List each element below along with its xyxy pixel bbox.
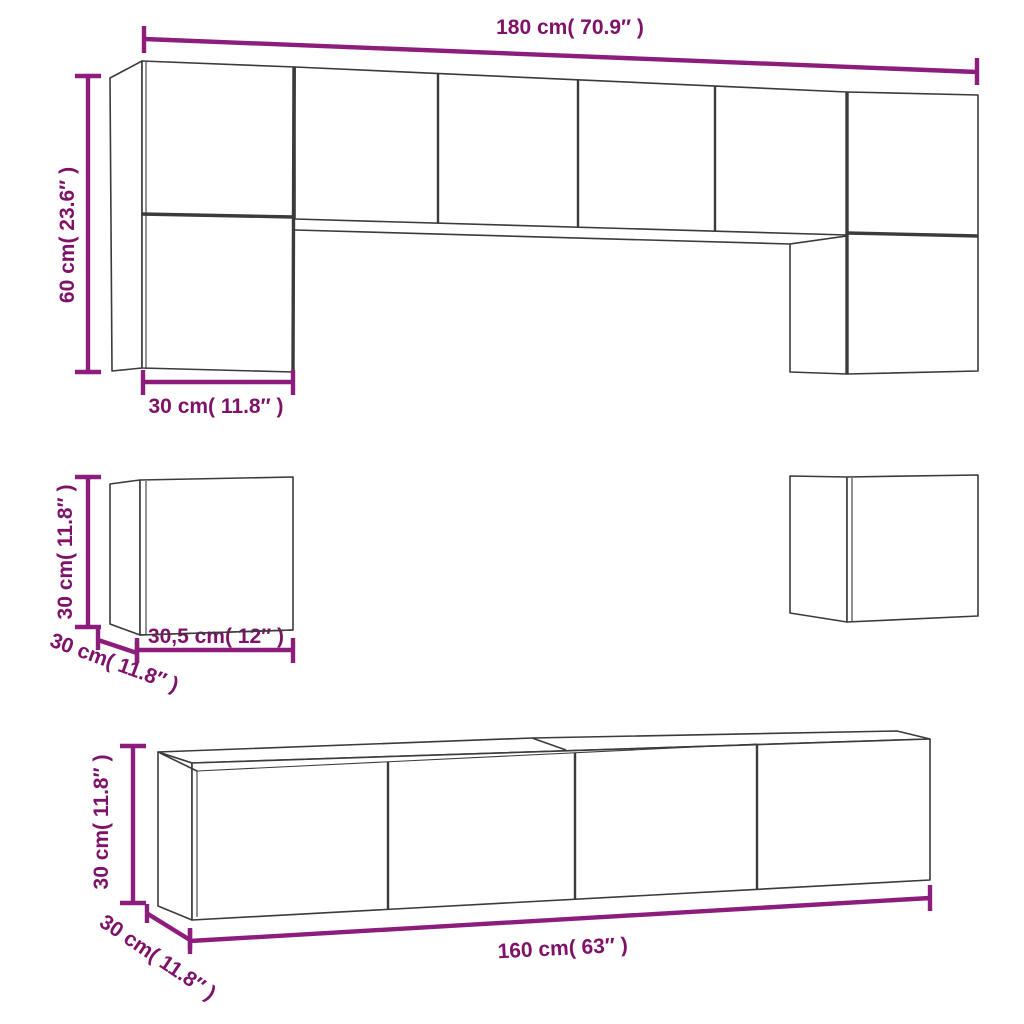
product-dimension-image: 180 cm( 70.9″ ) 60 cm( 23.6″ ) 30 cm( 11… xyxy=(0,0,1024,1024)
diagram-canvas: 180 cm( 70.9″ ) 60 cm( 23.6″ ) 30 cm( 11… xyxy=(0,0,1024,1024)
small-left-side-face xyxy=(110,480,140,635)
tv-stand-side-face xyxy=(158,752,192,920)
dim-top-height-label: 60 cm( 23.6″ ) xyxy=(56,167,79,303)
tv-stand-bottom xyxy=(158,731,930,920)
top-row-doors-face xyxy=(295,67,847,235)
small-wall-cabinet-left xyxy=(110,477,293,635)
tall-left-right-edge xyxy=(293,67,294,372)
small-right-front-face xyxy=(847,475,978,622)
dim-mid-width-label: 30,5 cm( 12″ ) xyxy=(148,625,284,648)
dim-bottom-height-line xyxy=(120,746,146,903)
dim-bottom-depth-label: 30 cm( 11.8″ ) xyxy=(95,910,220,1005)
tall-right-side-face xyxy=(790,236,847,374)
dim-top-height: 60 cm( 23.6″ ) xyxy=(56,76,101,372)
small-right-side-face xyxy=(790,476,847,622)
dim-mid-height-line xyxy=(75,477,101,627)
tall-left-side-face xyxy=(110,61,142,371)
small-wall-cabinet-right xyxy=(790,475,978,622)
dim-top-width-label: 180 cm( 70.9″ ) xyxy=(496,16,644,39)
dim-mid-height: 30 cm( 11.8″ ) xyxy=(54,477,101,627)
dim-top-depth-label: 30 cm( 11.8″ ) xyxy=(149,395,284,418)
wall-cabinet-top-row xyxy=(295,67,847,244)
dim-top-depth-line xyxy=(143,370,293,395)
dim-mid-height-label: 30 cm( 11.8″ ) xyxy=(54,485,77,620)
dim-bottom-height-label: 30 cm( 11.8″ ) xyxy=(90,755,113,890)
small-left-front-face xyxy=(140,477,293,635)
wall-cabinet-tall-left xyxy=(110,61,295,372)
dim-bottom-width-label: 160 cm( 63″ ) xyxy=(497,934,628,964)
dim-bottom-height: 30 cm( 11.8″ ) xyxy=(90,746,146,903)
dim-top-depth: 30 cm( 11.8″ ) xyxy=(143,370,293,418)
